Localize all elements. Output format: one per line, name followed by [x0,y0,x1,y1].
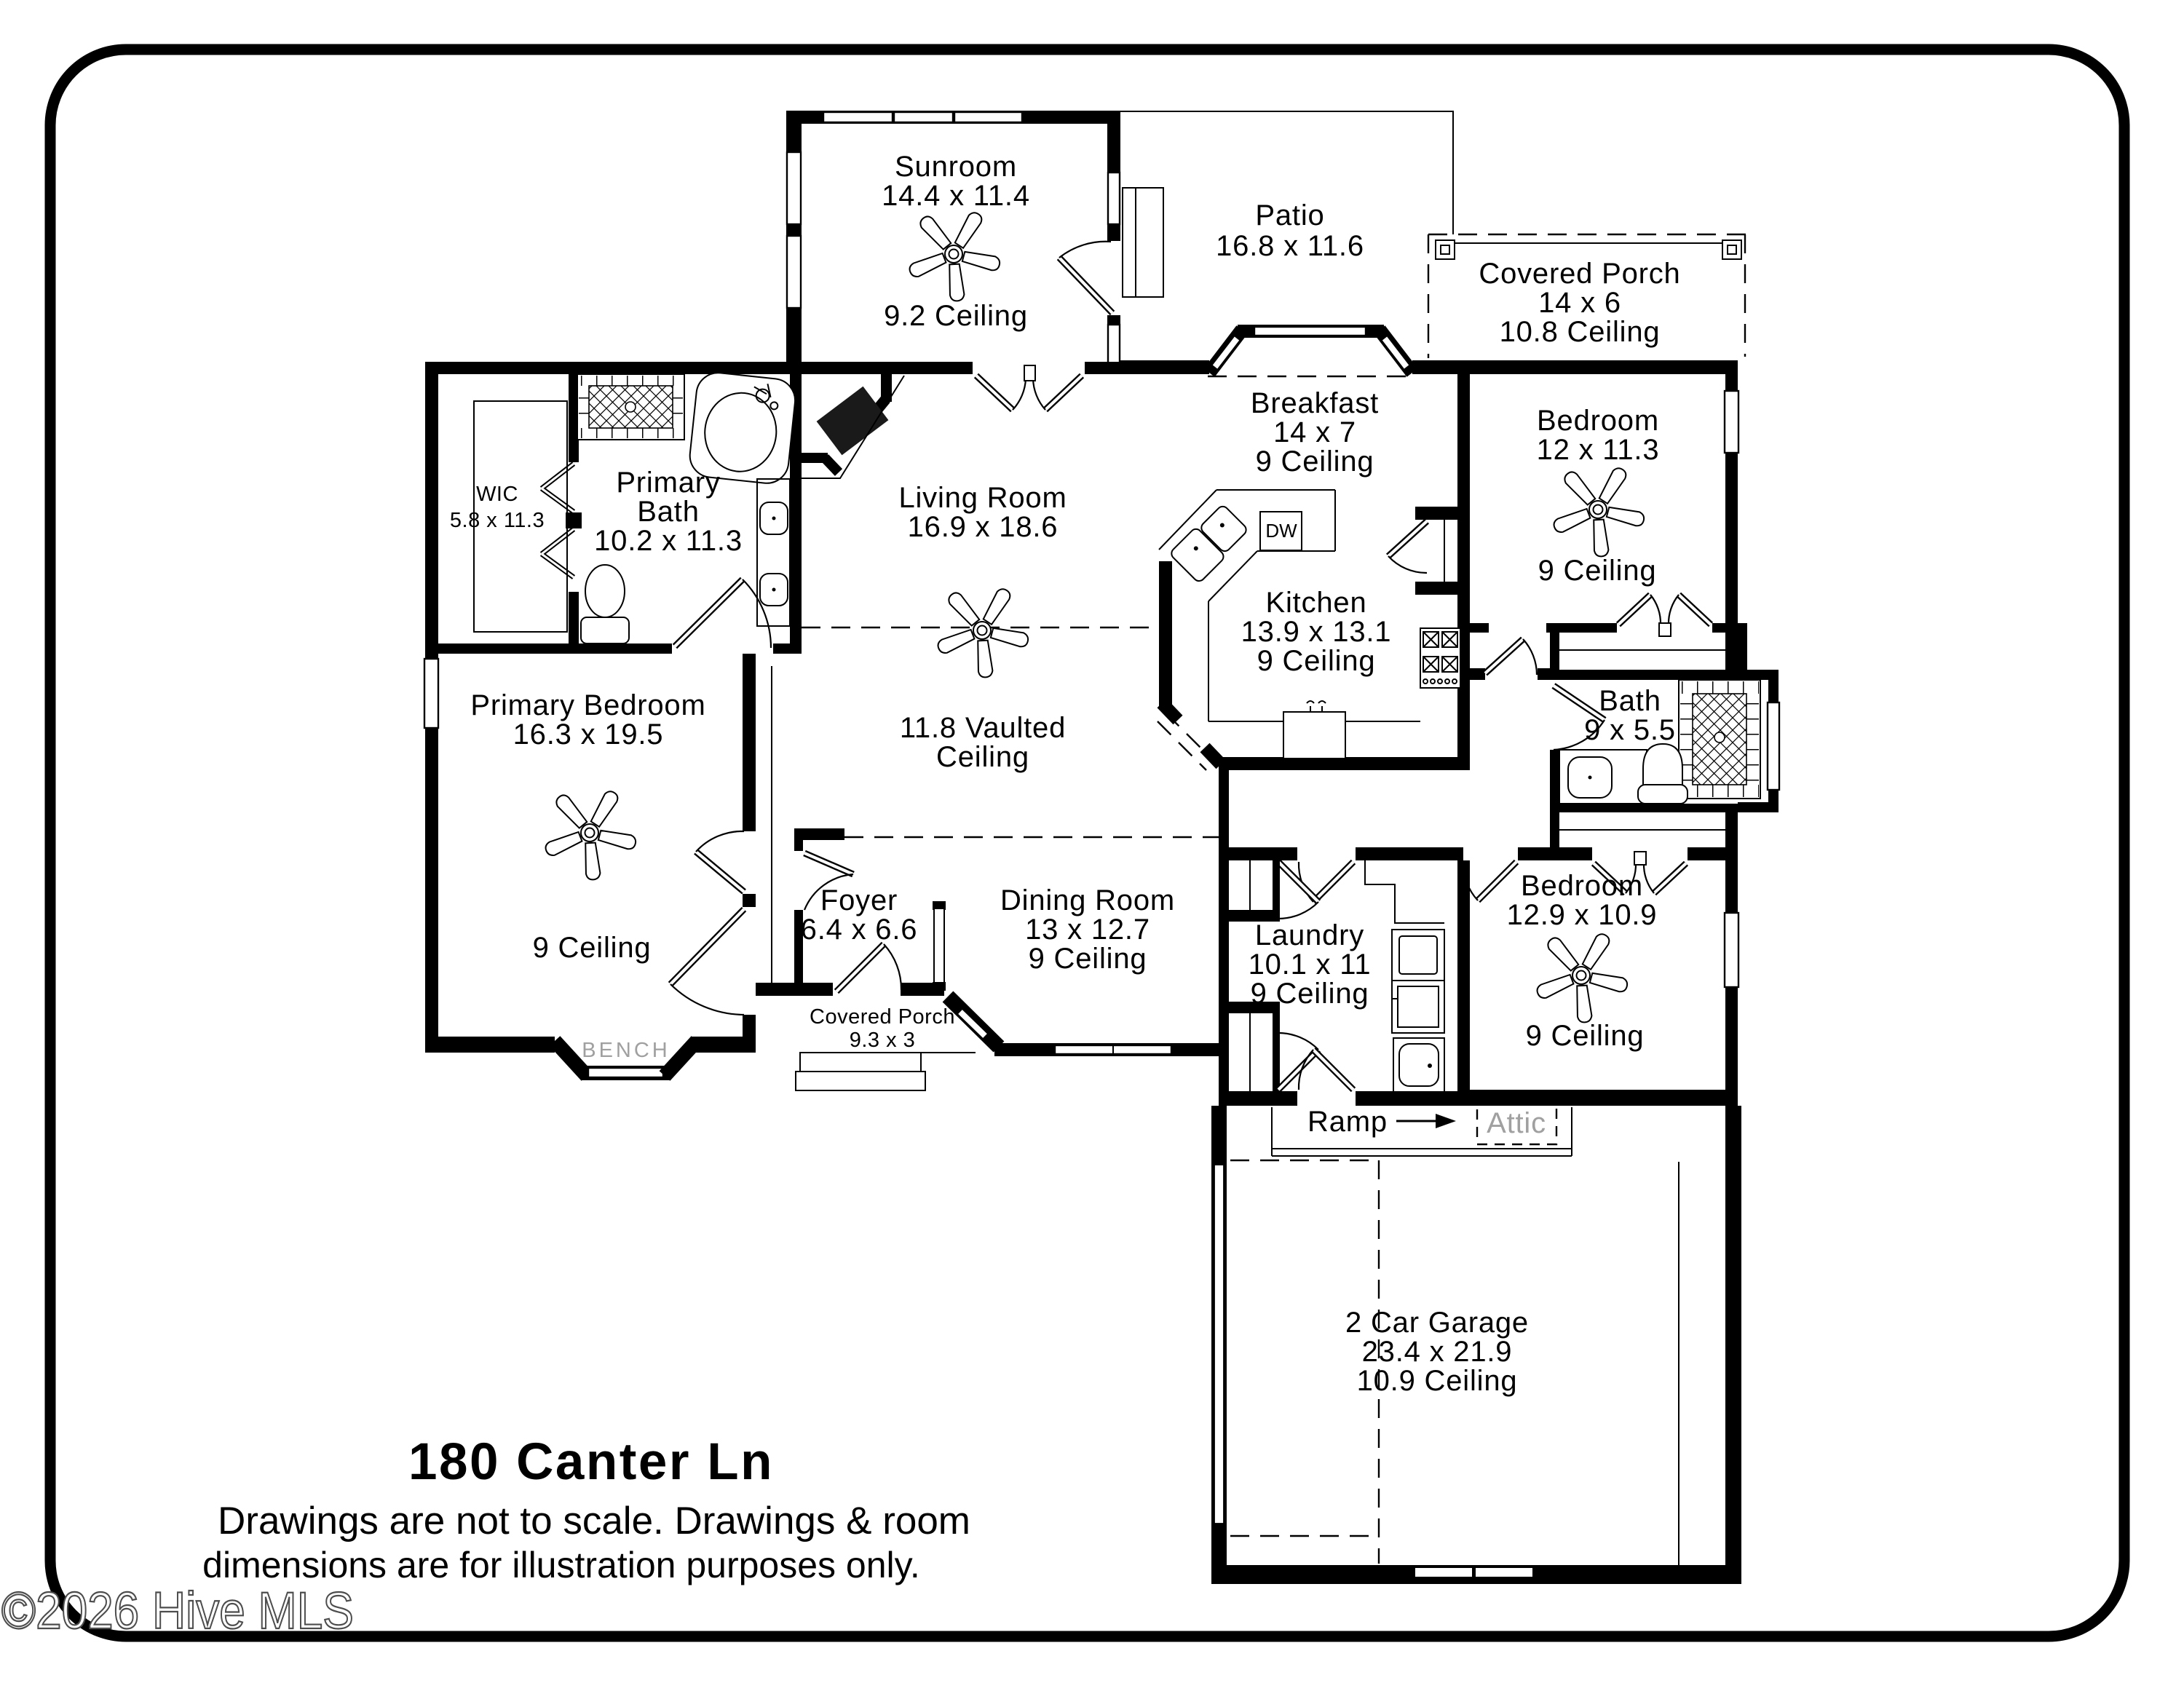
svg-text:Covered Porch: Covered Porch [810,1005,955,1029]
svg-text:9.3 x 3: 9.3 x 3 [850,1029,916,1052]
svg-text:12.9 x 10.9: 12.9 x 10.9 [1507,899,1658,931]
svg-text:Sunroom: Sunroom [895,151,1017,183]
svg-text:Drawings are not to scale. Dra: Drawings are not to scale. Drawings & ro… [218,1500,970,1543]
svg-text:9 Ceiling: 9 Ceiling [1257,645,1376,677]
svg-text:9 Ceiling: 9 Ceiling [1251,978,1369,1010]
svg-text:Attic: Attic [1487,1107,1546,1139]
svg-text:Patio: Patio [1255,199,1324,231]
svg-text:10.8 Ceiling: 10.8 Ceiling [1500,316,1661,348]
svg-text:Breakfast: Breakfast [1251,387,1379,419]
svg-text:16.8 x 11.6: 16.8 x 11.6 [1216,230,1364,262]
svg-text:13 x 12.7: 13 x 12.7 [1025,914,1150,946]
svg-text:14.4 x 11.4: 14.4 x 11.4 [882,180,1030,212]
svg-text:14 x 6: 14 x 6 [1538,287,1621,319]
svg-text:5.8 x 11.3: 5.8 x 11.3 [450,509,545,532]
svg-text:180 Canter Ln: 180 Canter Ln [408,1433,774,1491]
svg-text:DW: DW [1265,520,1297,542]
svg-text:Ceiling: Ceiling [936,741,1029,773]
svg-text:10.9 Ceiling: 10.9 Ceiling [1357,1365,1518,1397]
svg-text:Living Room: Living Room [898,482,1067,514]
svg-text:Covered Porch: Covered Porch [1479,258,1680,290]
svg-text:9 Ceiling: 9 Ceiling [1029,943,1147,975]
svg-text:2 Car Garage: 2 Car Garage [1345,1307,1529,1339]
svg-text:Primary Bedroom: Primary Bedroom [470,689,705,721]
svg-text:16.9 x 18.6: 16.9 x 18.6 [908,511,1059,543]
svg-text:9.2 Ceiling: 9.2 Ceiling [884,300,1028,332]
svg-text:10.2 x 11.3: 10.2 x 11.3 [594,525,743,557]
svg-text:dimensions are for illustratio: dimensions are for illustration purposes… [202,1545,920,1585]
svg-text:©2026 Hive MLS: ©2026 Hive MLS [1,1583,354,1640]
svg-text:Ramp: Ramp [1307,1106,1388,1138]
svg-text:23.4 x 21.9: 23.4 x 21.9 [1362,1336,1513,1368]
svg-text:13.9 x 13.1: 13.9 x 13.1 [1241,616,1392,648]
svg-text:9 Ceiling: 9 Ceiling [1526,1020,1645,1052]
svg-text:Bedroom: Bedroom [1537,405,1659,437]
svg-text:WIC: WIC [476,483,518,506]
svg-text:Foyer: Foyer [820,884,898,916]
svg-text:10.1 x 11: 10.1 x 11 [1249,949,1372,981]
svg-text:9 Ceiling: 9 Ceiling [1538,555,1657,587]
svg-text:Primary: Primary [616,467,720,499]
svg-text:Dining Room: Dining Room [1000,884,1175,916]
svg-text:Bath: Bath [1599,685,1661,717]
svg-text:9 x 5.5: 9 x 5.5 [1584,714,1676,746]
svg-text:Laundry: Laundry [1255,919,1364,951]
svg-text:12 x 11.3: 12 x 11.3 [1537,434,1660,466]
svg-text:9 Ceiling: 9 Ceiling [1256,445,1374,478]
svg-text:6.4 x 6.6: 6.4 x 6.6 [801,914,918,946]
svg-text:Bedroom: Bedroom [1521,870,1643,902]
svg-text:BENCH: BENCH [582,1039,670,1062]
svg-text:9 Ceiling: 9 Ceiling [533,932,652,964]
svg-text:16.3 x 19.5: 16.3 x 19.5 [513,718,664,751]
svg-text:14 x 7: 14 x 7 [1273,416,1356,448]
svg-text:Bath: Bath [637,496,700,528]
svg-text:Kitchen: Kitchen [1265,587,1366,619]
svg-text:11.8 Vaulted: 11.8 Vaulted [900,712,1066,744]
